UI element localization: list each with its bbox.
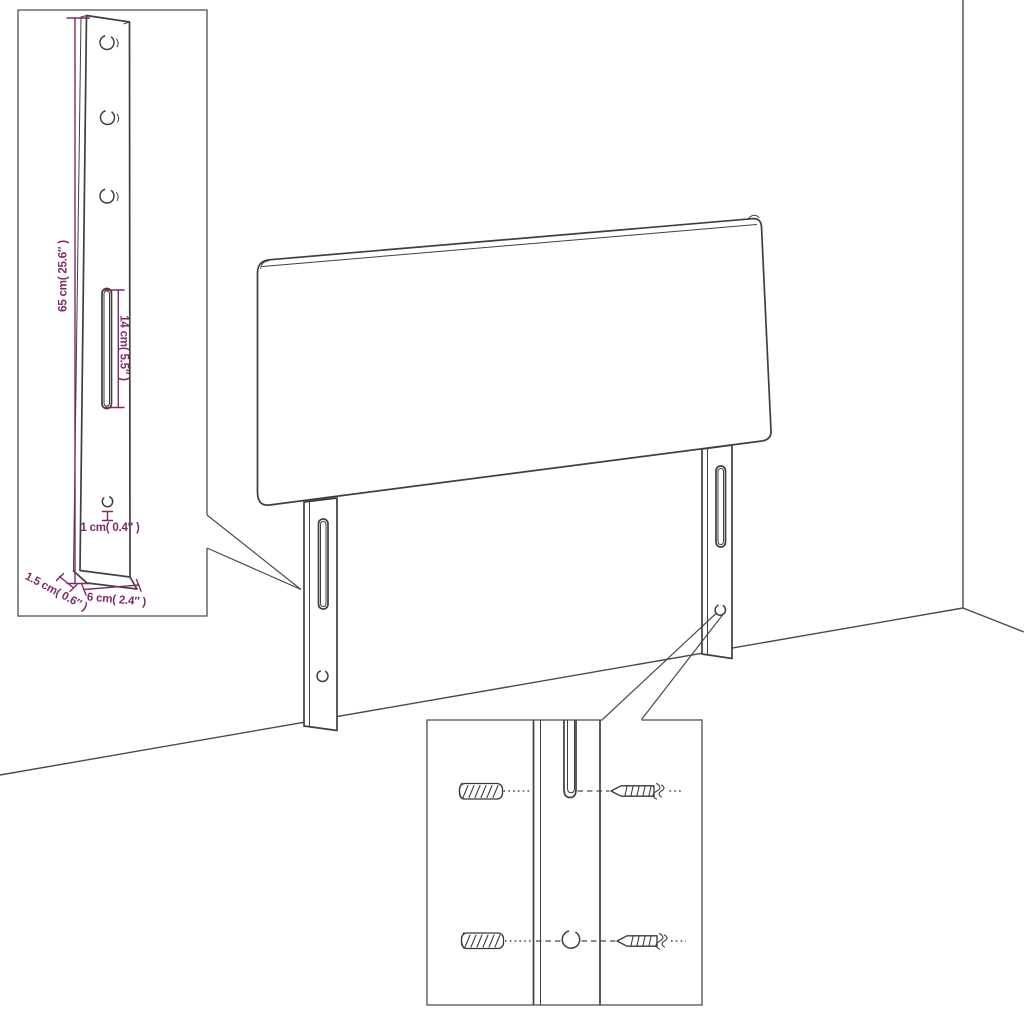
screw-top [611,784,664,800]
screw-head [653,784,664,800]
callout-line [207,548,301,590]
floor-line-left [0,608,963,775]
callout-line [603,614,717,720]
leg-detail-slot [102,289,112,409]
dimension-label-hole: 1 cm( 0.4″ ) [80,522,140,534]
left-leg [304,498,337,731]
headboard-dimension-diagram: 65 cm( 25.6″ ) 14 cm( 5.5″ ) 1 cm( 0.4″ … [0,0,1024,1024]
screw-head [656,934,667,950]
dimension-label-height: 65 cm( 25.6″ ) [58,240,70,312]
callout-line [642,615,723,720]
wall-plug-top [460,783,503,799]
right-leg [702,445,732,659]
alignment-guides [504,791,687,941]
hardware-detail-inset [427,720,702,1005]
leg-closeup [534,721,601,1005]
leg-detail-drawing [74,16,138,590]
leg-closeup-hole [559,928,583,952]
headboard-outline [258,219,772,505]
leg-closeup-slot-inner [568,721,575,793]
leg-detail-inset: 65 cm( 25.6″ ) 14 cm( 5.5″ ) 1 cm( 0.4″ … [18,10,207,616]
screw-bottom [617,934,667,950]
callout-line [207,515,301,590]
diagram-canvas: 65 cm( 25.6″ ) 14 cm( 5.5″ ) 1 cm( 0.4″ … [0,0,1024,1024]
floor-line-right [963,608,1024,632]
headboard-panel [258,215,772,505]
right-leg-slot [716,466,726,547]
wall-plug-bottom [462,933,504,949]
left-leg-slot [319,519,329,609]
callout-left-inset [207,515,301,590]
dimension-label-slot: 14 cm( 5.5″ ) [118,315,130,381]
dimension-label-width: 6 cm( 2.4″ ) [86,591,147,608]
